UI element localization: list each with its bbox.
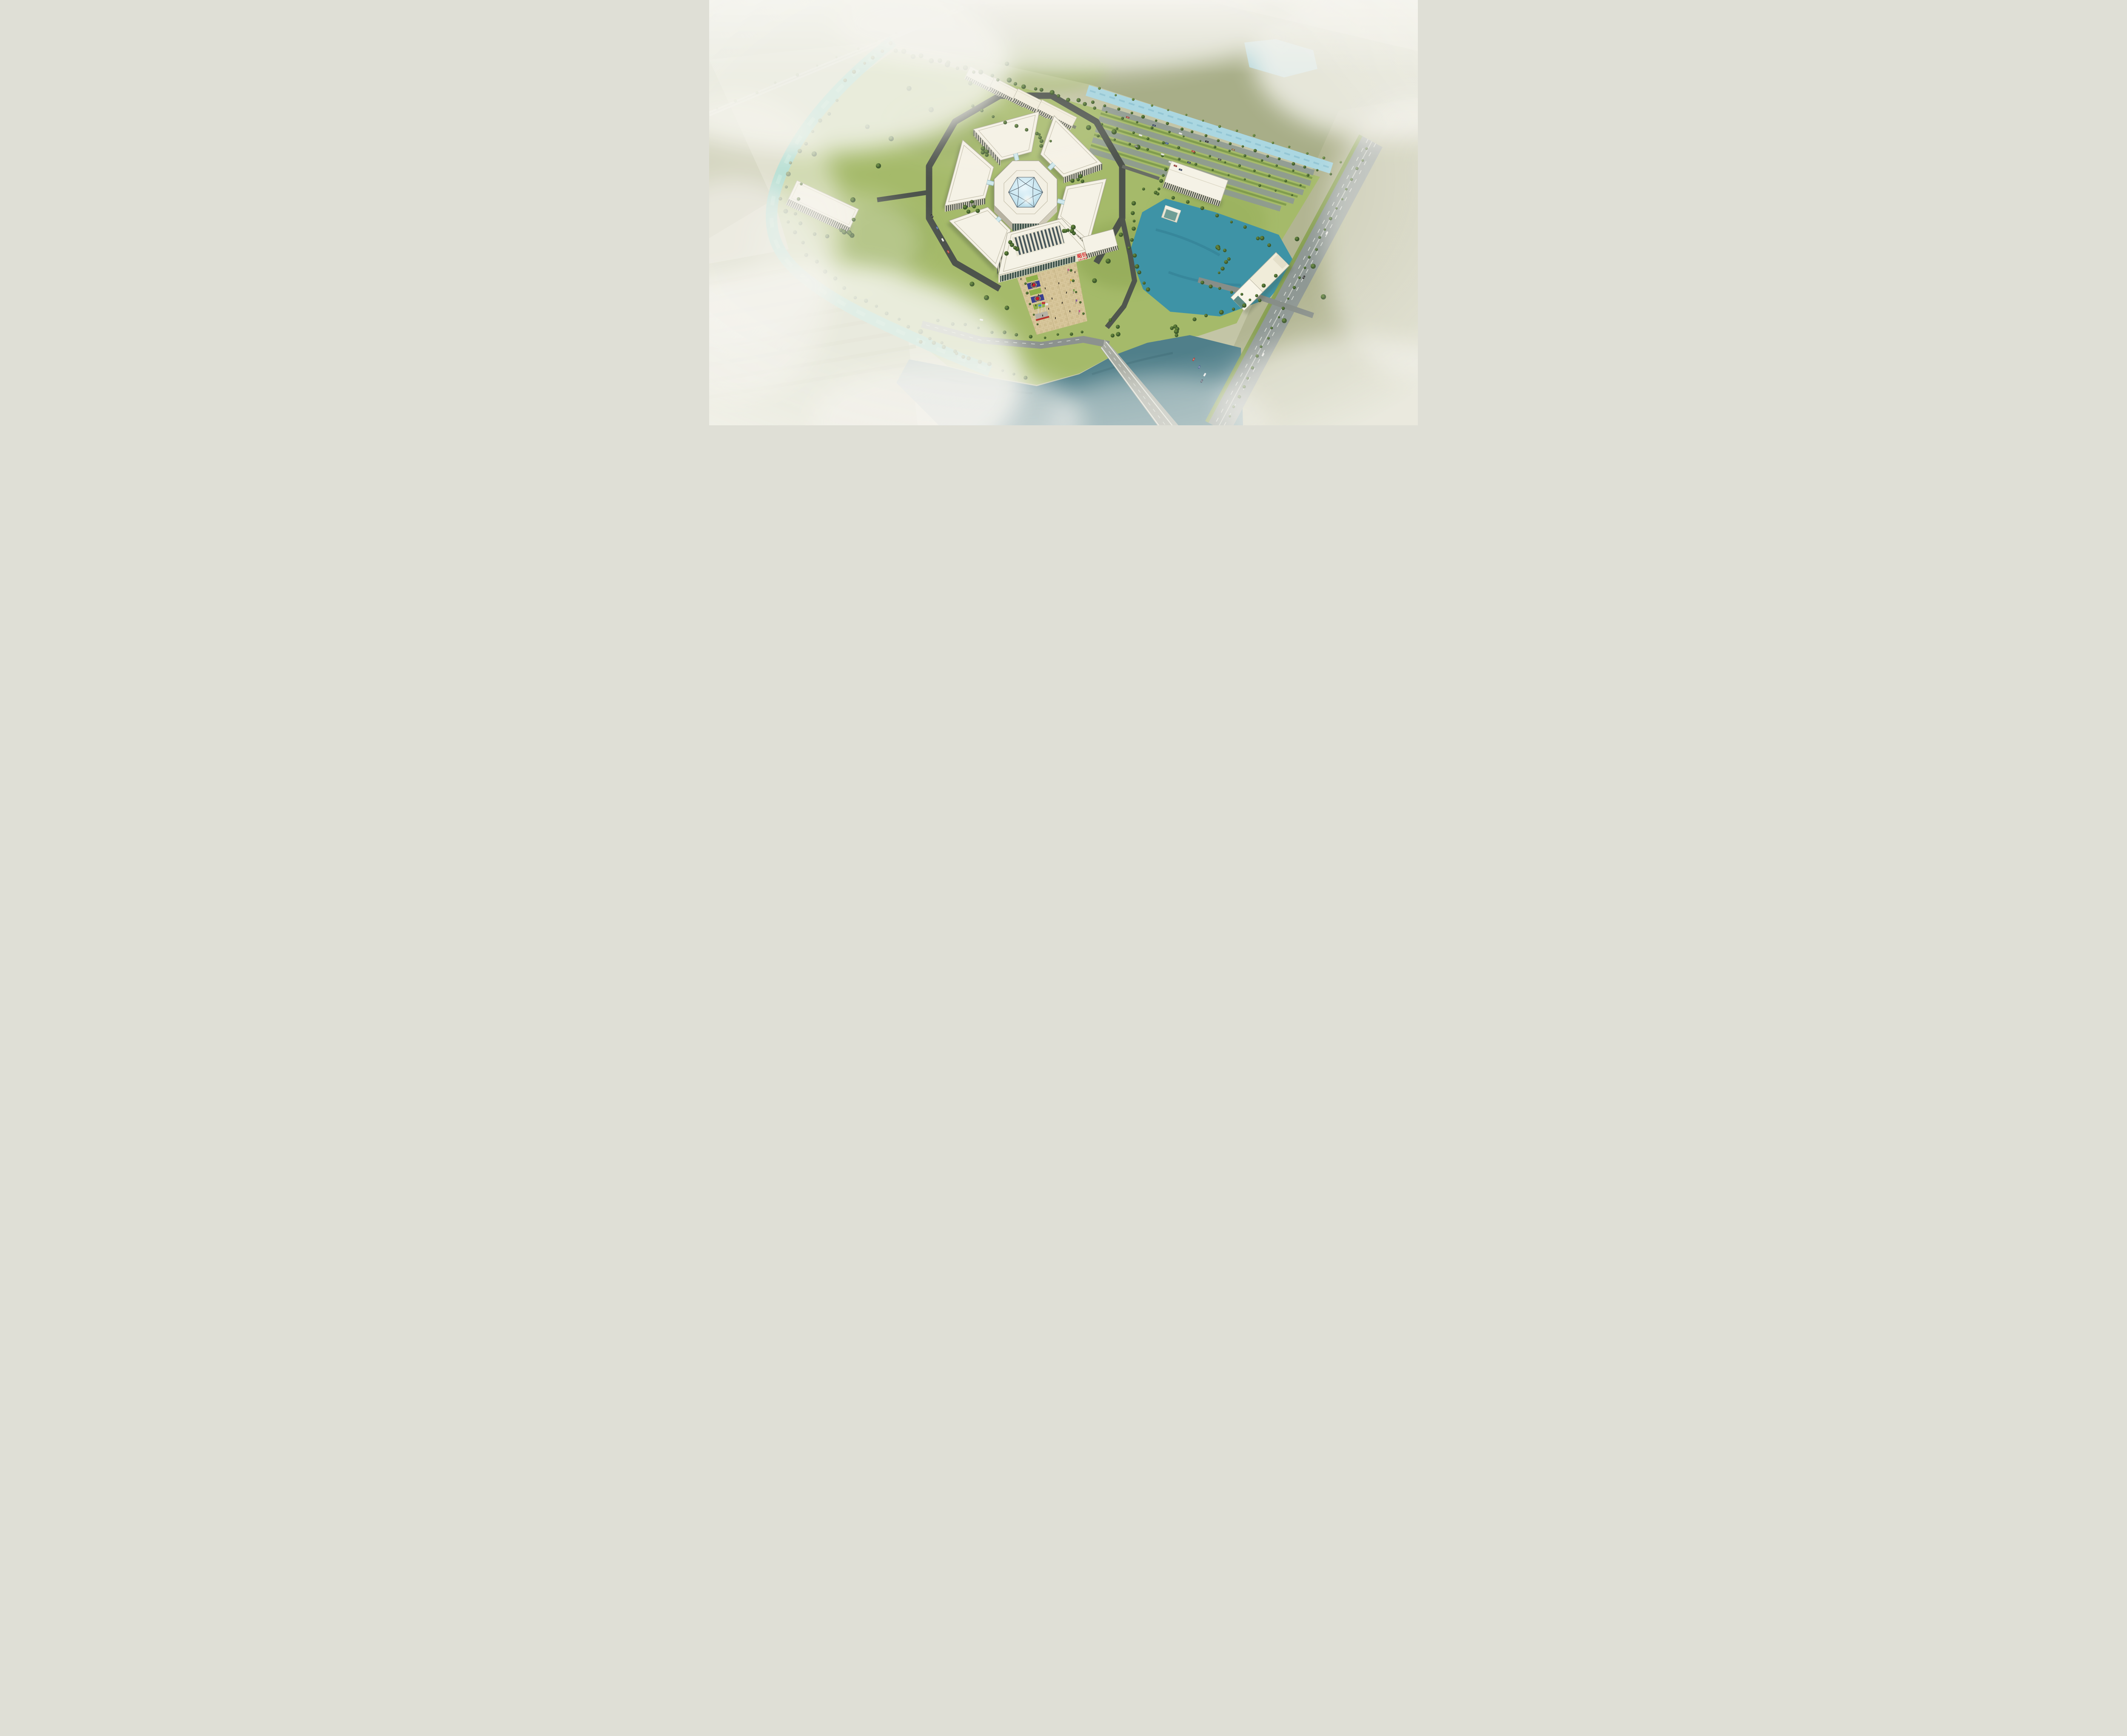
rendering-stage: 昭衍 JOINN — [709, 0, 1418, 425]
flag-left — [1038, 305, 1041, 307]
flag-center — [1042, 302, 1045, 304]
flag-right — [1045, 303, 1048, 305]
central-hub-atrium — [994, 161, 1057, 231]
campus-rendering-scene: 昭衍 JOINN — [709, 0, 1418, 425]
